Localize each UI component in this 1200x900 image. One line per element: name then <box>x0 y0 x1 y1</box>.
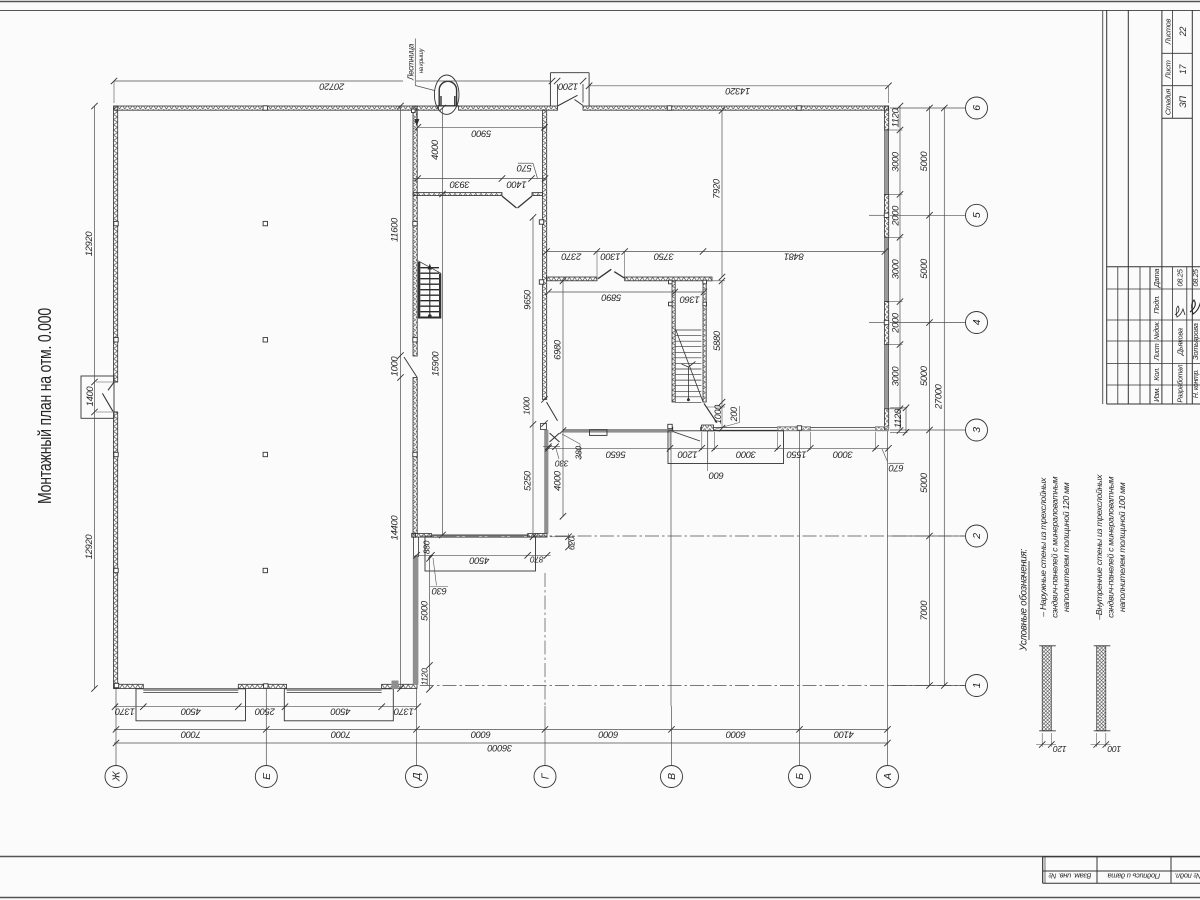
svg-text:380: 380 <box>574 446 584 460</box>
svg-text:1120: 1120 <box>890 107 901 127</box>
svg-text:Лестница: Лестница <box>407 43 416 81</box>
svg-text:ЗП: ЗП <box>1178 96 1188 108</box>
svg-text:670: 670 <box>888 463 904 474</box>
svg-text:1400: 1400 <box>84 386 95 407</box>
svg-text:4500: 4500 <box>469 556 490 567</box>
svg-text:36000: 36000 <box>487 743 513 754</box>
svg-text:5000: 5000 <box>419 600 430 621</box>
svg-text:Разработал: Разработал <box>1177 364 1185 402</box>
svg-text:2500: 2500 <box>254 707 276 718</box>
svg-text:1370: 1370 <box>393 707 414 718</box>
svg-text:№док.: №док. <box>1153 321 1161 340</box>
svg-text:4500: 4500 <box>330 707 351 718</box>
svg-text:7000: 7000 <box>180 729 201 740</box>
svg-text:наполнителем толщиной 120 мм: наполнителем толщиной 120 мм <box>1061 482 1071 612</box>
svg-text:Подпись и дата: Подпись и дата <box>1108 872 1161 881</box>
svg-text:наполнителем толщиной 100 мм: наполнителем толщиной 100 мм <box>1117 482 1127 612</box>
svg-text:7920: 7920 <box>711 178 722 199</box>
svg-text:100: 100 <box>1107 744 1121 754</box>
svg-text:6: 6 <box>971 105 983 111</box>
svg-text:Стадия: Стадия <box>1164 89 1173 116</box>
svg-text:630: 630 <box>431 586 447 597</box>
svg-text:5650: 5650 <box>605 449 626 460</box>
svg-text:08.25: 08.25 <box>1176 268 1185 286</box>
svg-text:5900: 5900 <box>471 129 492 140</box>
svg-text:8481: 8481 <box>784 252 804 263</box>
svg-text:сэндвич-панелей с минераловатн: сэндвич-панелей с минераловатным <box>1050 476 1060 618</box>
svg-text:20720: 20720 <box>319 82 346 93</box>
svg-text:Взам. инв. №: Взам. инв. № <box>1048 872 1091 881</box>
svg-text:1360: 1360 <box>679 294 700 305</box>
svg-text:1120: 1120 <box>420 668 430 686</box>
svg-text:Изм.: Изм. <box>1152 387 1161 402</box>
svg-text:– Наружные стены из трехслойны: – Наружные стены из трехслойных <box>1038 477 1048 618</box>
svg-text:1000: 1000 <box>522 397 532 415</box>
svg-text:В: В <box>666 773 678 780</box>
svg-text:200: 200 <box>729 407 739 422</box>
svg-text:330: 330 <box>555 459 569 469</box>
svg-text:Н. контр.: Н. контр. <box>1193 369 1200 398</box>
svg-text:880: 880 <box>422 540 432 554</box>
svg-text:3000: 3000 <box>832 449 853 460</box>
svg-text:6000: 6000 <box>470 729 491 740</box>
svg-text:1370: 1370 <box>114 707 135 718</box>
svg-text:3000: 3000 <box>735 449 756 460</box>
svg-text:11600: 11600 <box>389 217 400 242</box>
svg-text:7000: 7000 <box>330 729 351 740</box>
svg-text:3000: 3000 <box>890 258 901 279</box>
svg-text:1200: 1200 <box>557 82 578 93</box>
svg-text:1000: 1000 <box>713 405 723 424</box>
svg-text:120: 120 <box>1053 744 1067 754</box>
svg-text:9650: 9650 <box>522 289 533 310</box>
svg-text:Подп.: Подп. <box>1152 295 1161 314</box>
svg-text:4100: 4100 <box>833 729 854 740</box>
svg-text:12920: 12920 <box>83 231 94 257</box>
svg-text:6980: 6980 <box>552 339 563 360</box>
svg-text:Листов: Листов <box>1164 18 1173 45</box>
svg-text:5890: 5890 <box>601 292 622 303</box>
svg-text:1: 1 <box>971 683 983 689</box>
svg-text:1120: 1120 <box>892 408 903 428</box>
svg-text:3750: 3750 <box>653 252 674 263</box>
svg-text:5000: 5000 <box>918 472 929 493</box>
svg-text:3000: 3000 <box>890 366 901 387</box>
svg-text:14400: 14400 <box>389 515 400 541</box>
svg-text:1200: 1200 <box>677 449 698 460</box>
svg-text:12920: 12920 <box>83 534 94 560</box>
svg-text:Зотьярова: Зотьярова <box>1191 323 1200 360</box>
svg-text:2000: 2000 <box>890 205 901 227</box>
svg-text:15900: 15900 <box>430 351 441 377</box>
svg-text:2: 2 <box>971 533 983 540</box>
svg-text:7000: 7000 <box>918 600 929 621</box>
svg-text:27000: 27000 <box>933 383 944 410</box>
svg-text:сэндвич-панелей с минераловатн: сэндвич-панелей с минераловатным <box>1106 476 1116 618</box>
svg-text:1000: 1000 <box>389 356 400 377</box>
svg-text:Дьякова: Дьякова <box>1176 328 1185 356</box>
svg-text:600: 600 <box>708 471 724 482</box>
svg-text:08.25: 08.25 <box>1191 268 1200 286</box>
svg-text:5: 5 <box>971 212 983 218</box>
svg-text:22: 22 <box>1178 27 1188 38</box>
svg-text:1300: 1300 <box>600 252 621 263</box>
svg-text:Дата: Дата <box>1152 269 1161 289</box>
svg-text:4500: 4500 <box>180 707 201 718</box>
svg-text:Д: Д <box>411 772 423 781</box>
svg-text:4: 4 <box>971 319 983 325</box>
svg-text:3000: 3000 <box>890 151 901 172</box>
svg-text:1550: 1550 <box>786 449 807 460</box>
svg-text:17: 17 <box>1178 64 1188 75</box>
svg-text:Лист: Лист <box>1164 60 1173 79</box>
svg-text:4000: 4000 <box>552 470 563 491</box>
svg-text:Монтажный план на отм. 0.000: Монтажный план на отм. 0.000 <box>35 308 55 504</box>
svg-text:870: 870 <box>530 555 544 565</box>
svg-text:6000: 6000 <box>725 729 746 740</box>
svg-text:Кол.: Кол. <box>1152 367 1161 381</box>
svg-text:5000: 5000 <box>918 258 929 279</box>
svg-text:3: 3 <box>971 427 983 433</box>
svg-text:Условные обозначения:: Условные обозначения: <box>1019 548 1030 651</box>
svg-text:Ж: Ж <box>111 770 123 782</box>
svg-text:5880: 5880 <box>711 330 722 351</box>
svg-text:Инв. № подл.: Инв. № подл. <box>1174 872 1200 881</box>
svg-text:570: 570 <box>516 163 532 174</box>
svg-text:6000: 6000 <box>598 729 619 740</box>
svg-text:5250: 5250 <box>522 470 533 491</box>
svg-text:4000: 4000 <box>429 139 440 160</box>
svg-text:5000: 5000 <box>918 365 929 386</box>
svg-text:5000: 5000 <box>918 151 929 172</box>
svg-text:–Внутренние стены из трехслойн: –Внутренние стены из трехслойных <box>1094 474 1104 621</box>
svg-text:3930: 3930 <box>449 179 470 190</box>
svg-text:14320: 14320 <box>725 86 751 97</box>
svg-text:2370: 2370 <box>561 252 583 263</box>
svg-text:2000: 2000 <box>890 312 901 334</box>
svg-text:620: 620 <box>567 536 577 550</box>
svg-text:Лист: Лист <box>1154 343 1161 361</box>
svg-text:1400: 1400 <box>506 179 527 190</box>
svg-text:на крышу: на крышу <box>419 47 425 73</box>
svg-text:А: А <box>882 773 894 781</box>
svg-text:Б: Б <box>794 773 806 780</box>
